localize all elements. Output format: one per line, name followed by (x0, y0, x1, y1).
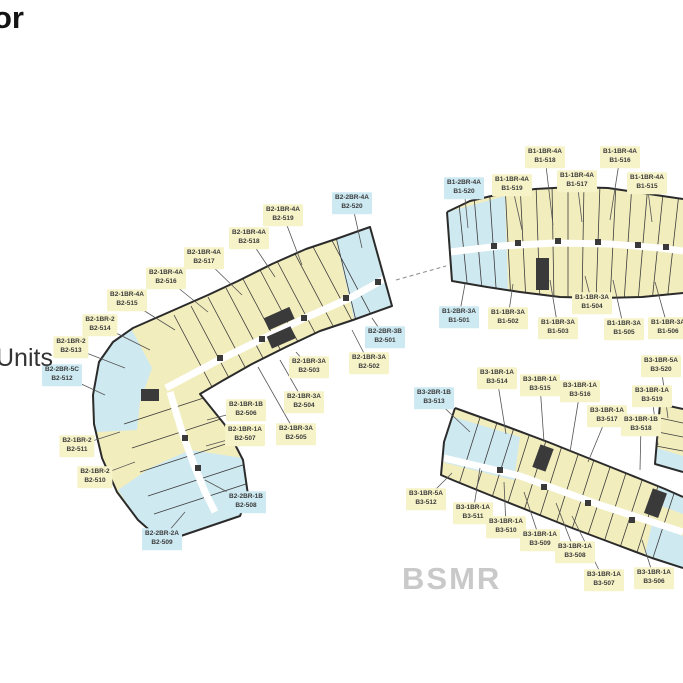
unit-number-text: B1-519 (495, 185, 529, 194)
unit-number-text: B3-518 (624, 425, 658, 434)
unit-type-text: B3-1BR-1A (637, 569, 671, 578)
unit-label-b2-513: B2-1BR-2B2-513 (53, 336, 88, 358)
unit-type-text: B2-1BR-4A (232, 229, 266, 238)
floor-plan-page: BSMR (0, 0, 683, 683)
unit-label-b2-504: B2-1BR-3AB2-504 (284, 391, 324, 413)
unit-label-b2-515: B2-1BR-4AB2-515 (107, 289, 147, 311)
unit-label-b1-517: B1-1BR-4AB1-517 (557, 170, 597, 192)
unit-number-text: B2-520 (335, 203, 369, 212)
unit-label-b2-519: B2-1BR-4AB2-519 (263, 204, 303, 226)
unit-label-b3-518: B3-1BR-1BB3-518 (621, 414, 661, 436)
unit-number-text: B3-519 (635, 396, 669, 405)
unit-type-text: B2-1BR-1B (229, 401, 263, 410)
unit-label-b1-501: B1-2BR-3AB1-501 (439, 306, 479, 328)
unit-type-text: B1-2BR-3A (442, 308, 476, 317)
unit-type-text: B1-1BR-3A (651, 319, 683, 328)
unit-number-text: B1-502 (491, 318, 525, 327)
unit-number-text: B3-510 (489, 527, 523, 536)
unit-type-text: B1-1BR-4A (603, 148, 637, 157)
unit-number-text: B3-508 (558, 552, 592, 561)
unit-number-text: B1-503 (541, 328, 575, 337)
unit-type-text: B2-1BR-3A (279, 425, 313, 434)
unit-type-text: B2-1BR-3A (352, 354, 386, 363)
unit-label-b2-503: B2-1BR-3AB2-503 (289, 356, 329, 378)
unit-number-text: B1-506 (651, 328, 683, 337)
unit-label-b2-517: B2-1BR-4AB2-517 (184, 247, 224, 269)
unit-number-text: B2-507 (228, 435, 262, 444)
unit-type-text: B3-1BR-1A (558, 543, 592, 552)
unit-label-b1-520: B1-2BR-4AB1-520 (444, 177, 484, 199)
unit-number-text: B1-504 (575, 303, 609, 312)
unit-label-b3-520: B3-1BR-5AB3-520 (641, 355, 681, 377)
unit-type-text: B2-1BR-4A (110, 291, 144, 300)
unit-label-b2-502: B2-1BR-3AB2-502 (349, 352, 389, 374)
unit-type-text: B2-1BR-3A (292, 358, 326, 367)
unit-label-b3-512: B3-1BR-5AB3-512 (406, 488, 446, 510)
unit-type-text: B1-1BR-3A (541, 319, 575, 328)
unit-label-b2-508: B2-2BR-1BB2-508 (226, 491, 266, 513)
unit-number-text: B2-502 (352, 363, 386, 372)
unit-number-text: B2-506 (229, 410, 263, 419)
unit-number-text: B2-501 (368, 337, 402, 346)
unit-number-text: B3-516 (563, 391, 597, 400)
unit-type-text: B2-1BR-2 (62, 437, 91, 446)
unit-number-text: B2-515 (110, 300, 144, 309)
unit-label-b1-516: B1-1BR-4AB1-516 (600, 146, 640, 168)
unit-number-text: B2-517 (187, 258, 221, 267)
unit-number-text: B3-515 (523, 385, 557, 394)
unit-type-text: B3-1BR-1A (563, 382, 597, 391)
unit-number-text: B2-512 (45, 375, 79, 384)
unit-label-b2-505: B2-1BR-3AB2-505 (276, 423, 316, 445)
unit-number-text: B1-505 (607, 329, 641, 338)
unit-type-text: B3-1BR-5A (644, 357, 678, 366)
unit-number-text: B2-513 (56, 347, 85, 356)
unit-type-text: B3-1BR-1A (523, 531, 557, 540)
unit-type-text: B3-1BR-5A (409, 490, 443, 499)
unit-number-text: B2-509 (145, 539, 179, 548)
unit-label-b1-502: B1-1BR-3AB1-502 (488, 307, 528, 329)
unit-type-text: B2-2BR-2A (145, 530, 179, 539)
legend-text-fragment: Units (0, 344, 53, 373)
unit-number-text: B1-520 (447, 188, 481, 197)
unit-label-b1-503: B1-1BR-3AB1-503 (538, 317, 578, 339)
unit-number-text: B3-513 (417, 398, 451, 407)
unit-number-text: B1-516 (603, 157, 637, 166)
unit-label-b2-510: B2-1BR-2B2-510 (77, 466, 112, 488)
unit-label-b3-519: B3-1BR-1AB3-519 (632, 385, 672, 407)
unit-type-text: B2-1BR-2 (80, 468, 109, 477)
unit-type-text: B1-1BR-3A (575, 294, 609, 303)
unit-label-b2-501: B2-2BR-3BB2-501 (365, 326, 405, 348)
unit-label-b3-509: B3-1BR-1AB3-509 (520, 529, 560, 551)
unit-type-text: B3-1BR-1A (590, 407, 624, 416)
unit-type-text: B3-1BR-1A (489, 518, 523, 527)
unit-type-text: B2-2BR-1B (229, 493, 263, 502)
unit-number-text: B2-504 (287, 402, 321, 411)
unit-number-text: B2-519 (266, 215, 300, 224)
unit-label-b3-507: B3-1BR-1AB3-507 (584, 569, 624, 591)
unit-label-b1-504: B1-1BR-3AB1-504 (572, 292, 612, 314)
unit-type-text: B1-1BR-4A (528, 148, 562, 157)
unit-number-text: B3-509 (523, 540, 557, 549)
unit-label-b1-518: B1-1BR-4AB1-518 (525, 146, 565, 168)
unit-number-text: B3-512 (409, 499, 443, 508)
unit-number-text: B2-505 (279, 434, 313, 443)
unit-type-text: B2-2BR-3B (368, 328, 402, 337)
unit-type-text: B1-1BR-4A (495, 176, 529, 185)
unit-type-text: B2-1BR-1A (228, 426, 262, 435)
unit-label-b3-508: B3-1BR-1AB3-508 (555, 541, 595, 563)
unit-type-text: B3-1BR-1A (587, 571, 621, 580)
unit-type-text: B1-2BR-4A (447, 179, 481, 188)
unit-type-text: B1-1BR-3A (491, 309, 525, 318)
unit-label-b3-514: B3-1BR-1AB3-514 (477, 367, 517, 389)
unit-type-text: B2-1BR-4A (187, 249, 221, 258)
unit-number-text: B2-514 (85, 325, 114, 334)
unit-label-b2-511: B2-1BR-2B2-511 (59, 435, 94, 457)
unit-label-b2-507: B2-1BR-1AB2-507 (225, 424, 265, 446)
unit-number-text: B2-511 (62, 446, 91, 455)
unit-type-text: B3-1BR-1B (624, 416, 658, 425)
unit-number-text: B2-510 (80, 477, 109, 486)
unit-number-text: B3-520 (644, 366, 678, 375)
unit-label-b3-506: B3-1BR-1AB3-506 (634, 567, 674, 589)
unit-type-text: B1-1BR-4A (560, 172, 594, 181)
unit-type-text: B2-2BR-4A (335, 194, 369, 203)
unit-label-b1-515: B1-1BR-4AB1-515 (627, 172, 667, 194)
unit-number-text: B3-517 (590, 416, 624, 425)
unit-label-b2-518: B2-1BR-4AB2-518 (229, 227, 269, 249)
unit-number-text: B1-518 (528, 157, 562, 166)
unit-type-text: B1-1BR-3A (607, 320, 641, 329)
unit-label-b2-516: B2-1BR-4AB2-516 (146, 267, 186, 289)
unit-type-text: B2-1BR-3A (287, 393, 321, 402)
unit-label-b2-520: B2-2BR-4AB2-520 (332, 192, 372, 214)
unit-number-text: B1-501 (442, 317, 476, 326)
unit-label-b1-505: B1-1BR-3AB1-505 (604, 318, 644, 340)
unit-type-text: B3-1BR-1A (456, 504, 490, 513)
page-title-fragment: or (0, 0, 24, 36)
unit-number-text: B1-517 (560, 181, 594, 190)
unit-number-text: B3-514 (480, 378, 514, 387)
unit-type-text: B3-1BR-1A (523, 376, 557, 385)
unit-number-text: B2-516 (149, 278, 183, 287)
unit-type-text: B3-1BR-1A (635, 387, 669, 396)
unit-type-text: B3-2BR-1B (417, 389, 451, 398)
unit-label-layer: B2-2BR-4AB2-520B2-1BR-4AB2-519B2-1BR-4AB… (0, 0, 683, 683)
unit-label-b2-514: B2-1BR-2B2-514 (82, 314, 117, 336)
unit-number-text: B3-507 (587, 580, 621, 589)
unit-label-b2-506: B2-1BR-1BB2-506 (226, 399, 266, 421)
unit-number-text: B2-518 (232, 238, 266, 247)
unit-label-b2-509: B2-2BR-2AB2-509 (142, 528, 182, 550)
unit-label-b3-515: B3-1BR-1AB3-515 (520, 374, 560, 396)
unit-type-text: B2-1BR-4A (266, 206, 300, 215)
unit-type-text: B2-1BR-2 (56, 338, 85, 347)
unit-label-b3-516: B3-1BR-1AB3-516 (560, 380, 600, 402)
unit-label-b1-506: B1-1BR-3AB1-506 (648, 317, 683, 339)
unit-label-b1-519: B1-1BR-4AB1-519 (492, 174, 532, 196)
unit-type-text: B1-1BR-4A (630, 174, 664, 183)
unit-type-text: B2-1BR-2 (85, 316, 114, 325)
unit-number-text: B2-503 (292, 367, 326, 376)
unit-type-text: B3-1BR-1A (480, 369, 514, 378)
unit-number-text: B2-508 (229, 502, 263, 511)
unit-label-b3-513: B3-2BR-1BB3-513 (414, 387, 454, 409)
unit-number-text: B3-506 (637, 578, 671, 587)
unit-type-text: B2-1BR-4A (149, 269, 183, 278)
unit-number-text: B1-515 (630, 183, 664, 192)
unit-number-text: B3-511 (456, 513, 490, 522)
